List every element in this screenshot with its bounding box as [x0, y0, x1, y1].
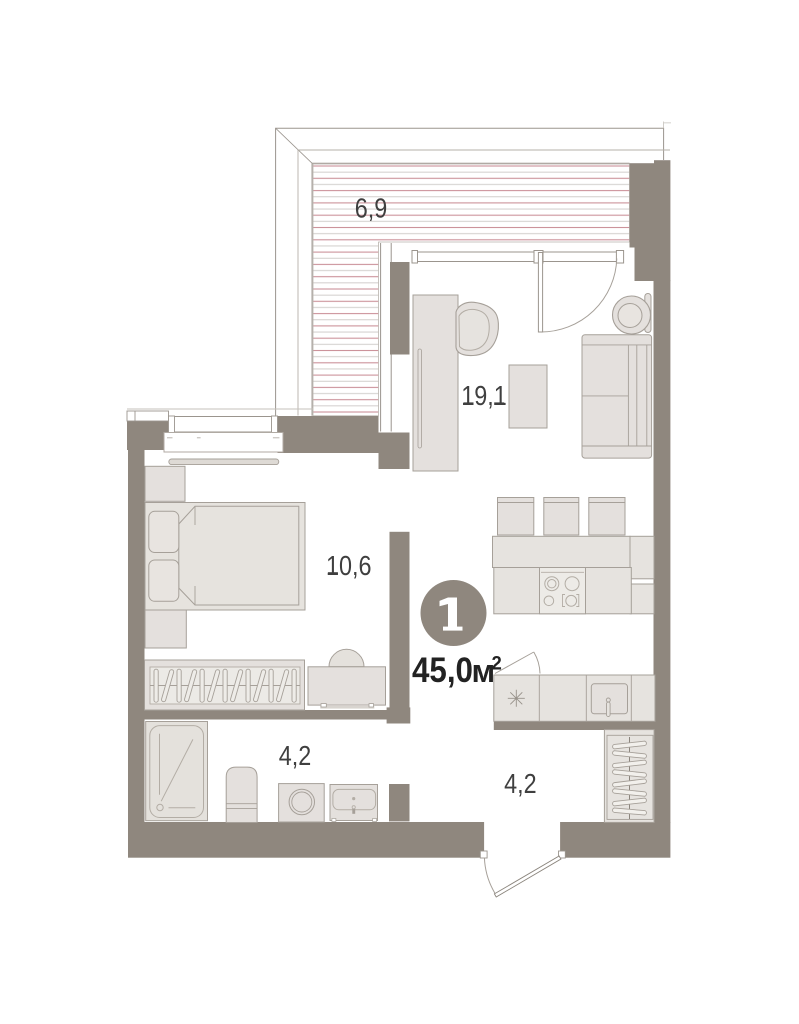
svg-text:45,0: 45,0: [412, 651, 473, 690]
svg-text:19,1: 19,1: [461, 381, 506, 411]
svg-text:2: 2: [492, 653, 502, 675]
svg-text:4,2: 4,2: [504, 769, 537, 799]
svg-text:10,6: 10,6: [326, 551, 371, 581]
svg-text:6,9: 6,9: [355, 194, 388, 224]
svg-text:4,2: 4,2: [279, 741, 312, 771]
